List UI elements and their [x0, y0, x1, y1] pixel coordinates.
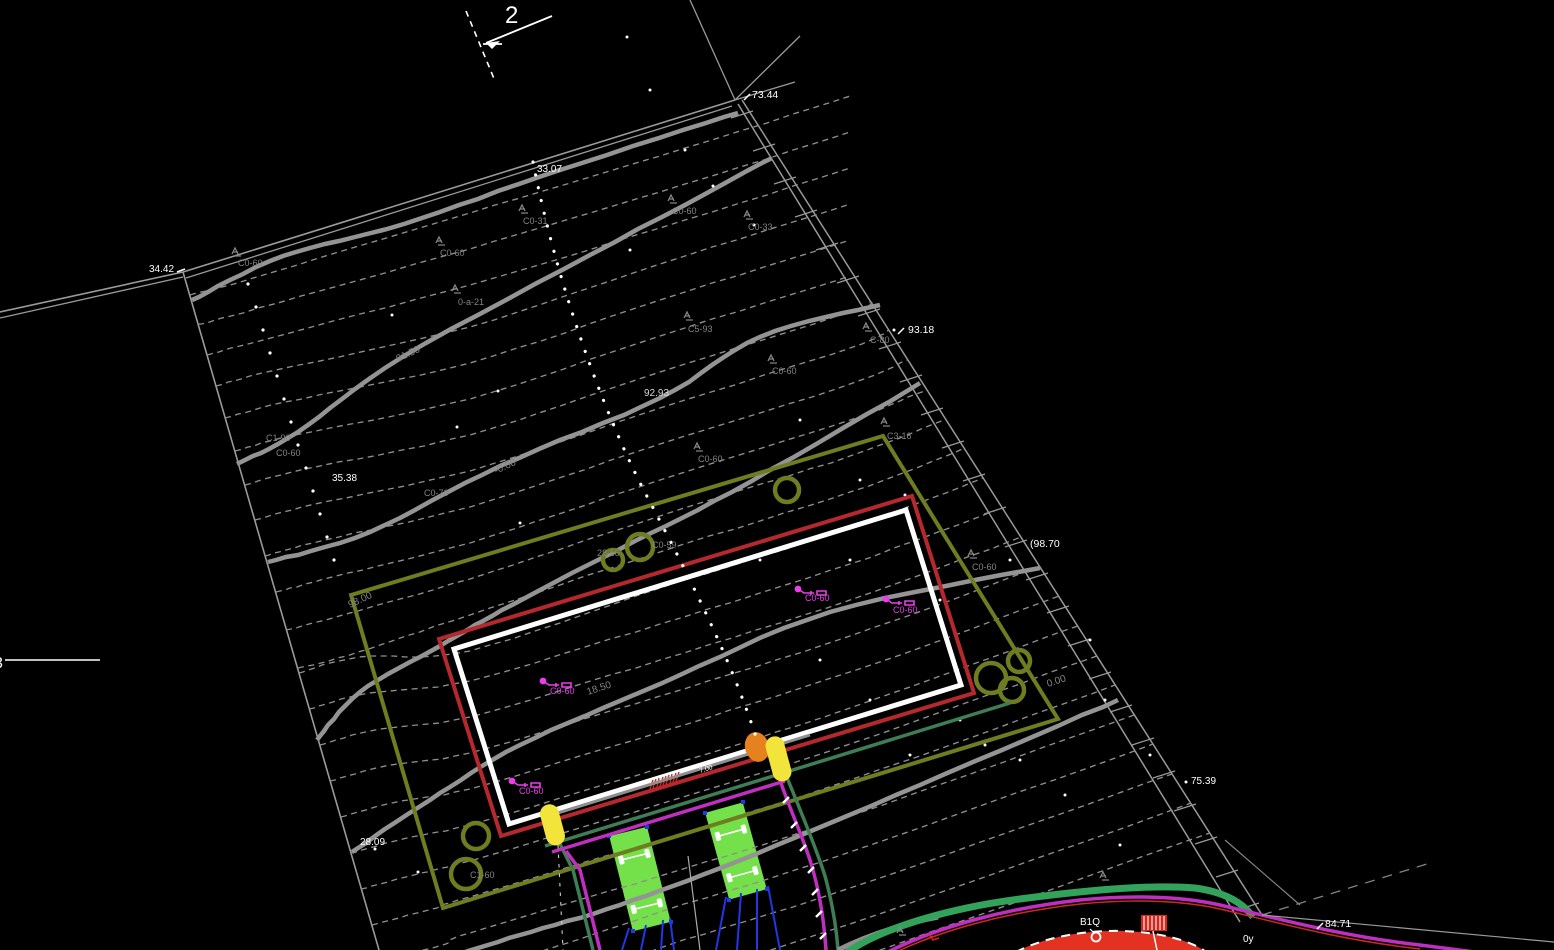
- svg-text:92.93: 92.93: [644, 388, 669, 399]
- svg-text:3: 3: [0, 655, 3, 672]
- svg-text:C0-60: C0-60: [893, 605, 918, 615]
- svg-text:C-80: C-80: [870, 335, 890, 345]
- svg-text:28 16: 28 16: [597, 548, 620, 558]
- svg-text:C0-60: C0-60: [276, 448, 301, 458]
- svg-text:93.18: 93.18: [908, 324, 934, 336]
- svg-text:75.39: 75.39: [1191, 776, 1216, 787]
- svg-text:0-a-21: 0-a-21: [458, 297, 484, 307]
- svg-text:33.07: 33.07: [537, 164, 562, 175]
- svg-text:C0-33: C0-33: [748, 222, 773, 232]
- svg-text:C5-93: C5-93: [688, 324, 713, 334]
- svg-text:C1-90: C1-90: [266, 433, 291, 443]
- svg-text:C0-60: C0-60: [440, 248, 465, 258]
- svg-text:C0-60: C0-60: [519, 786, 544, 796]
- svg-text:0y: 0y: [1243, 934, 1254, 945]
- svg-text:B1Q: B1Q: [1080, 917, 1100, 928]
- svg-text:C0-70: C0-70: [424, 488, 449, 498]
- svg-text:C0-60: C0-60: [238, 258, 263, 268]
- svg-text:C0-60: C0-60: [972, 562, 997, 572]
- svg-text:C0-59: C0-59: [652, 540, 677, 550]
- svg-text:(98.70: (98.70: [1030, 538, 1060, 550]
- svg-text:C0-31: C0-31: [523, 216, 548, 226]
- svg-text:73.44: 73.44: [752, 89, 778, 101]
- svg-text:C1-60: C1-60: [470, 870, 495, 880]
- svg-text:84.71: 84.71: [1325, 918, 1351, 930]
- svg-text:C0-60: C0-60: [805, 593, 830, 603]
- svg-text:C0-60: C0-60: [550, 686, 575, 696]
- svg-text:C0-60: C0-60: [672, 206, 697, 216]
- svg-text:2: 2: [505, 2, 518, 29]
- svg-text:35.38: 35.38: [332, 473, 357, 484]
- svg-text:C0-60: C0-60: [698, 454, 723, 464]
- svg-text:34.42: 34.42: [149, 264, 174, 275]
- svg-text:C0-60: C0-60: [772, 366, 797, 376]
- svg-text:C3-16: C3-16: [887, 431, 912, 441]
- svg-text:28.09: 28.09: [360, 837, 385, 848]
